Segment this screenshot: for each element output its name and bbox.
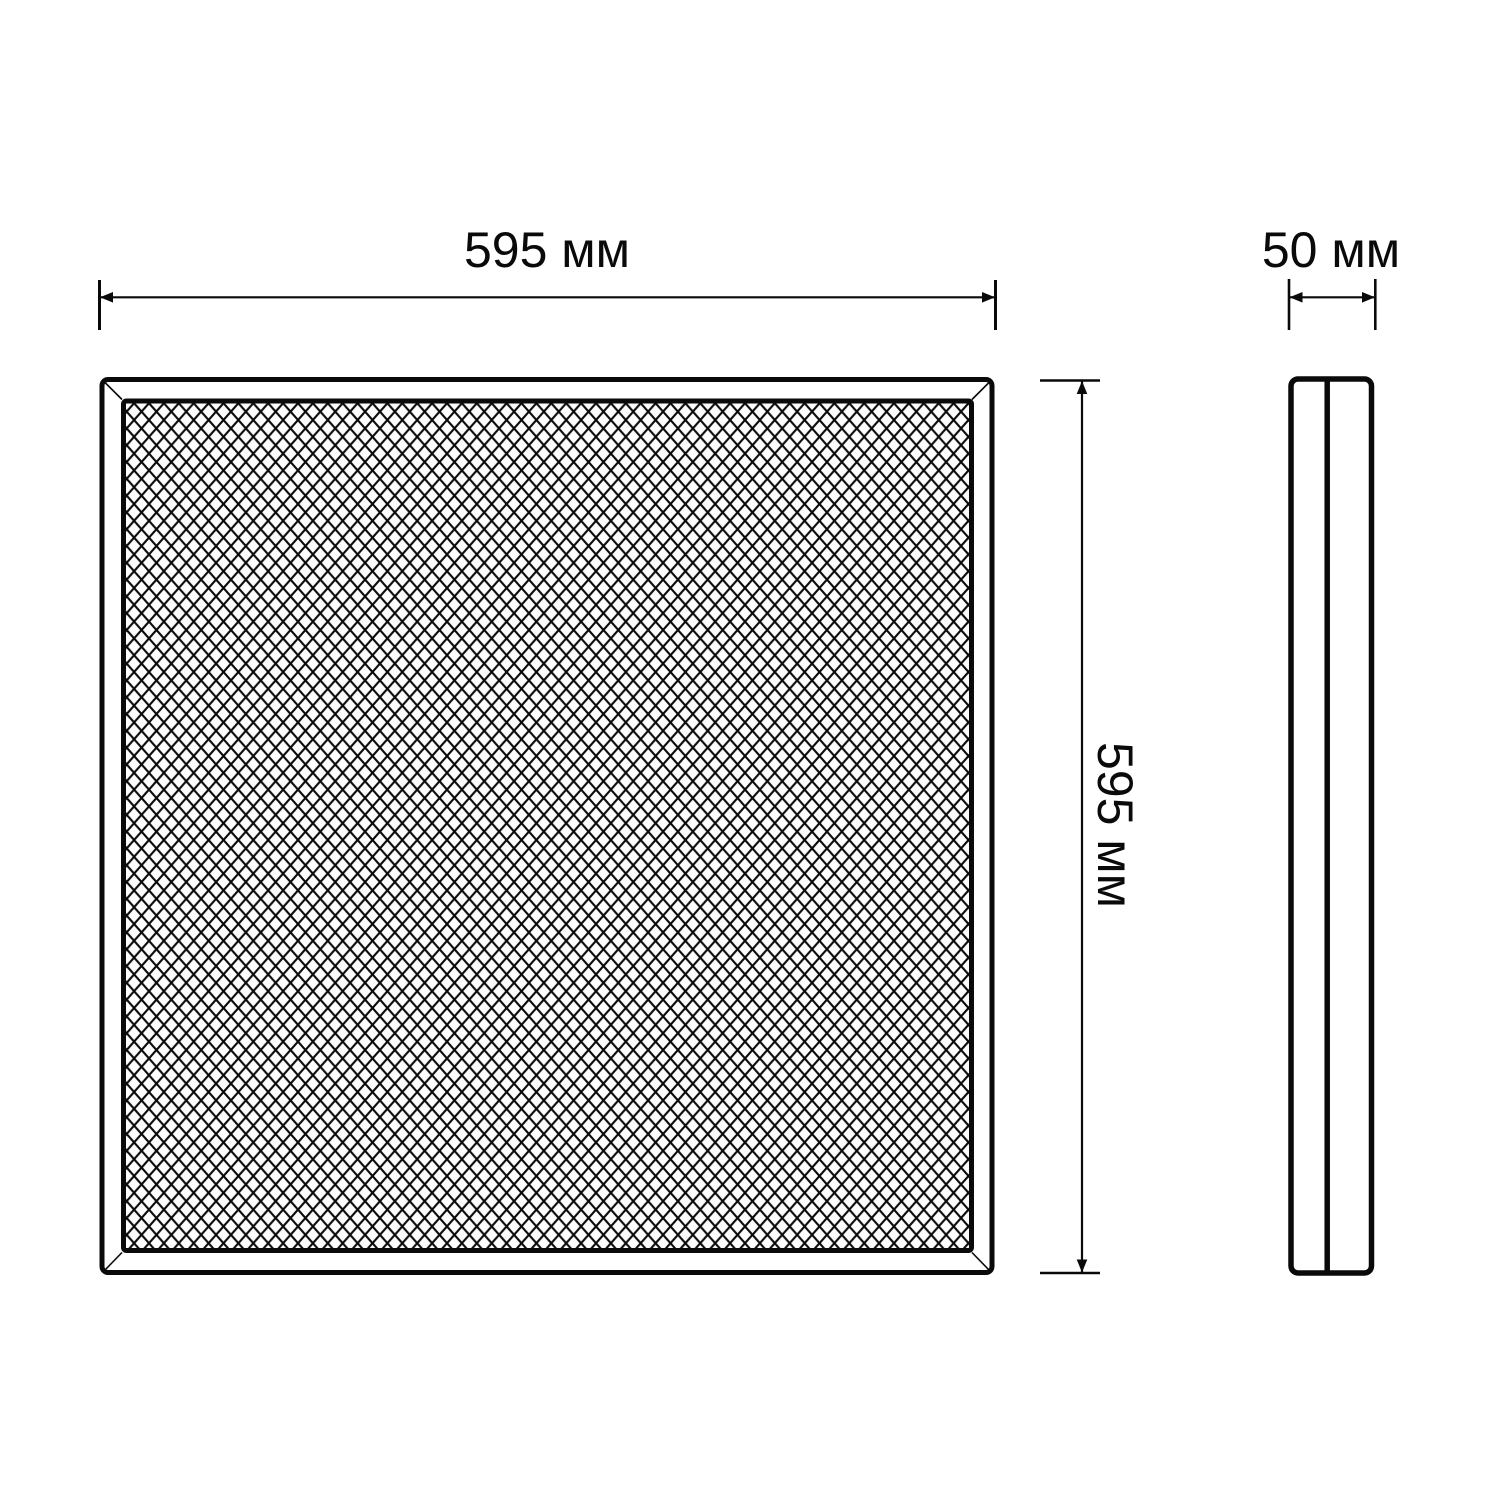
svg-text:50 мм: 50 мм bbox=[1262, 222, 1400, 278]
svg-text:595 мм: 595 мм bbox=[1087, 742, 1143, 908]
svg-text:595 мм: 595 мм bbox=[464, 222, 630, 278]
